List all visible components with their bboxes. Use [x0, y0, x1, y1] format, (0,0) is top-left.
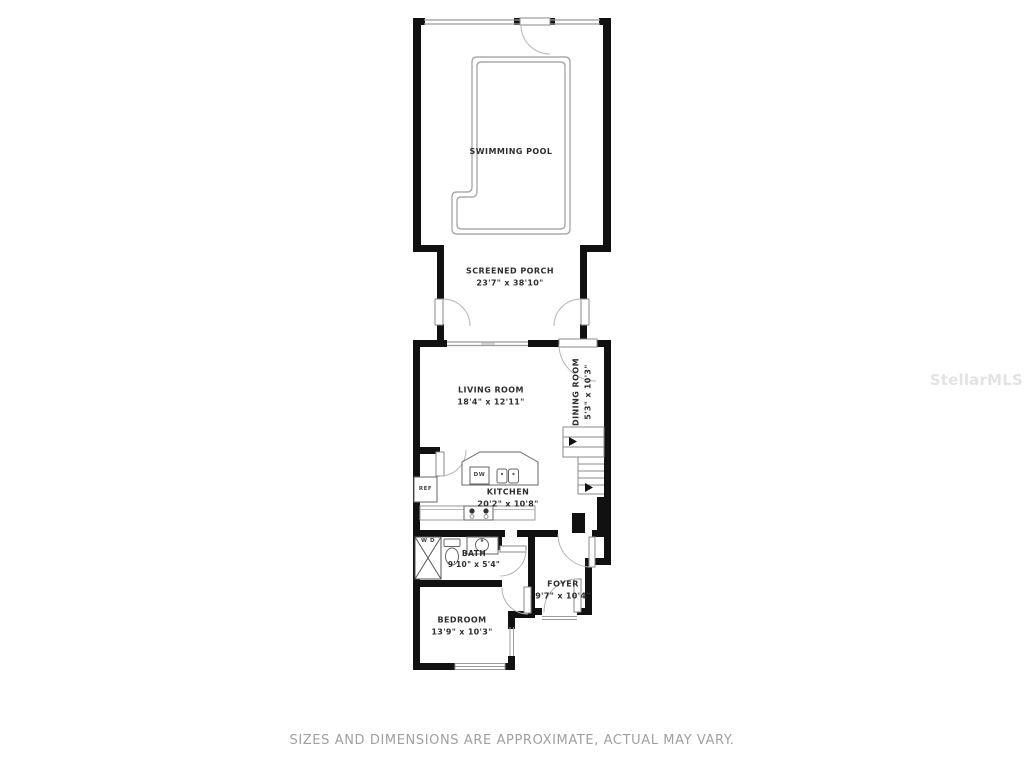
room-dims: 18'4" x 12'11" [457, 396, 524, 408]
mls-watermark: StellarMLS [930, 371, 1023, 389]
room-dims: 5'3" x 10'3" [582, 358, 594, 426]
bedroom-closet-sliding-door [510, 627, 514, 656]
room-dims: 13'9" x 10'3" [431, 626, 492, 638]
bedroom-door [502, 587, 531, 614]
porch-walls [413, 245, 611, 342]
sliding-glass-door [447, 342, 528, 346]
disclaimer-text: SIZES AND DIMENSIONS ARE APPROXIMATE, AC… [0, 733, 1024, 748]
room-name: FOYER [535, 578, 590, 590]
bath-door [500, 546, 526, 576]
washer-dryer-label: W D [421, 538, 435, 544]
pool-enclosure-door [520, 18, 550, 54]
room-dims: 9'10" x 5'4" [448, 560, 500, 571]
dishwasher-label: DW [474, 472, 486, 478]
foyer-closet-door [558, 534, 595, 567]
porch-left-door [435, 299, 470, 326]
room-label-dining-room: DINING ROOM 5'3" x 10'3" [570, 358, 593, 426]
staircase [563, 427, 604, 494]
pool-enclosure-walls [413, 18, 611, 252]
room-label-swimming-pool: SWIMMING POOL [470, 146, 553, 158]
floor-plan-page: SWIMMING POOL SCREENED PORCH 23'7" x 38'… [0, 0, 1024, 768]
room-name: BEDROOM [431, 614, 492, 626]
kitchen-island [462, 452, 538, 485]
pool-screen-wall [424, 20, 600, 24]
room-name: LIVING ROOM [457, 384, 524, 396]
room-label-foyer: FOYER 9'7" x 10'4" [535, 578, 590, 601]
room-label-bath: BATH 9'10" x 5'4" [448, 549, 500, 571]
room-dims: 20'2" x 10'8" [477, 498, 538, 510]
room-dims: 23'7" x 38'10" [466, 277, 554, 289]
room-label-living-room: LIVING ROOM 18'4" x 12'11" [457, 384, 524, 407]
room-name: SWIMMING POOL [470, 146, 553, 158]
room-label-screened-porch: SCREENED PORCH 23'7" x 38'10" [466, 265, 554, 288]
room-name: DINING ROOM [570, 358, 582, 426]
refrigerator-label: REF [419, 486, 432, 492]
room-name: SCREENED PORCH [466, 265, 554, 277]
room-name: BATH [448, 549, 500, 560]
room-label-kitchen: KITCHEN 20'2" x 10'8" [477, 486, 538, 509]
bedroom-window [455, 664, 505, 670]
porch-right-door [554, 299, 589, 326]
room-name: KITCHEN [477, 486, 538, 498]
room-label-bedroom: BEDROOM 13'9" x 10'3" [431, 614, 492, 637]
room-dims: 9'7" x 10'4" [535, 590, 590, 602]
